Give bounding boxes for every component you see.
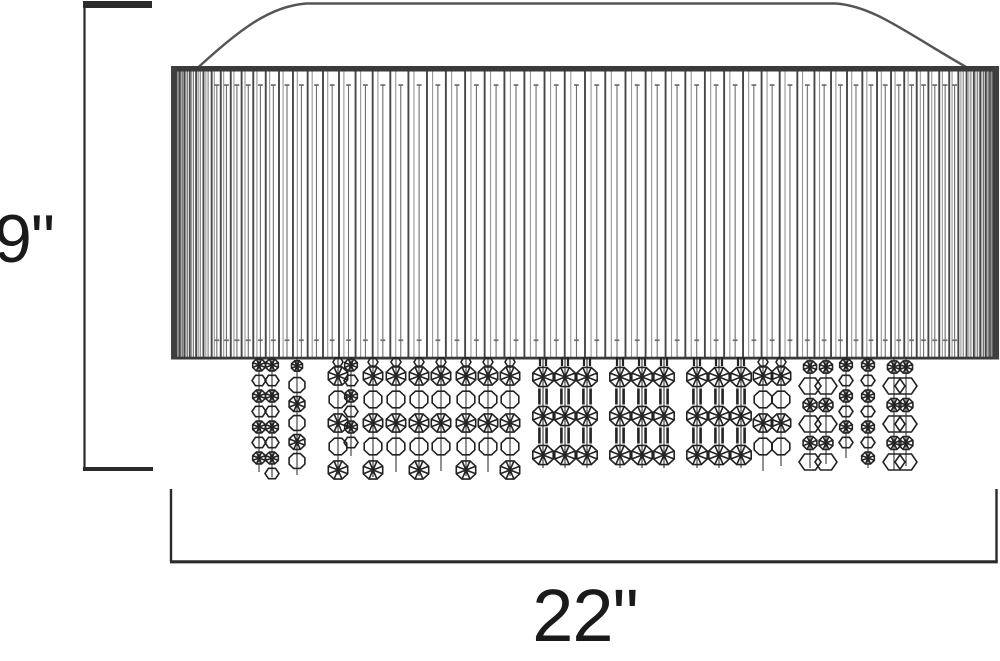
crystal-strand	[328, 357, 347, 479]
width-dimension-label: 22"	[532, 579, 638, 653]
shade-pleats	[172, 71, 997, 357]
crystal-strand	[861, 357, 875, 468]
crystal-strand	[478, 357, 497, 472]
crystal-strands	[252, 357, 917, 479]
crystal-strand	[895, 357, 917, 470]
width-dimension-line	[170, 489, 998, 562]
crystal-strand	[555, 357, 575, 468]
crystal-strand	[533, 357, 553, 468]
crystal-strand	[500, 357, 519, 479]
crystal-strand	[753, 357, 772, 471]
crystal-strand	[771, 357, 790, 466]
crystal-strand	[386, 357, 405, 472]
crystal-strand	[632, 357, 652, 468]
crystal-strand	[610, 357, 630, 468]
crystal-strand	[815, 357, 837, 470]
crystal-strand	[409, 357, 428, 479]
crystal-strand	[431, 357, 450, 471]
fixture-line-art	[0, 0, 1000, 661]
crystal-strand	[883, 357, 905, 470]
dimension-drawing: 9" 22"	[0, 0, 1000, 661]
crystal-strand	[363, 357, 382, 479]
height-dimension-label: 9"	[0, 205, 54, 273]
crystal-strand	[687, 357, 707, 468]
crystal-strand	[344, 357, 358, 456]
crystal-strand	[577, 357, 597, 468]
crystal-strand	[799, 357, 821, 470]
crystal-strand	[289, 357, 305, 475]
crystal-strand	[839, 357, 853, 458]
crystal-strand	[265, 357, 279, 479]
crystal-strand	[709, 357, 729, 468]
canopy-outline	[198, 4, 967, 68]
height-dimension-line	[83, 1, 153, 471]
crystal-strand	[252, 357, 266, 472]
crystal-strand	[731, 357, 751, 468]
crystal-strand	[456, 357, 475, 479]
crystal-strand	[654, 357, 674, 468]
